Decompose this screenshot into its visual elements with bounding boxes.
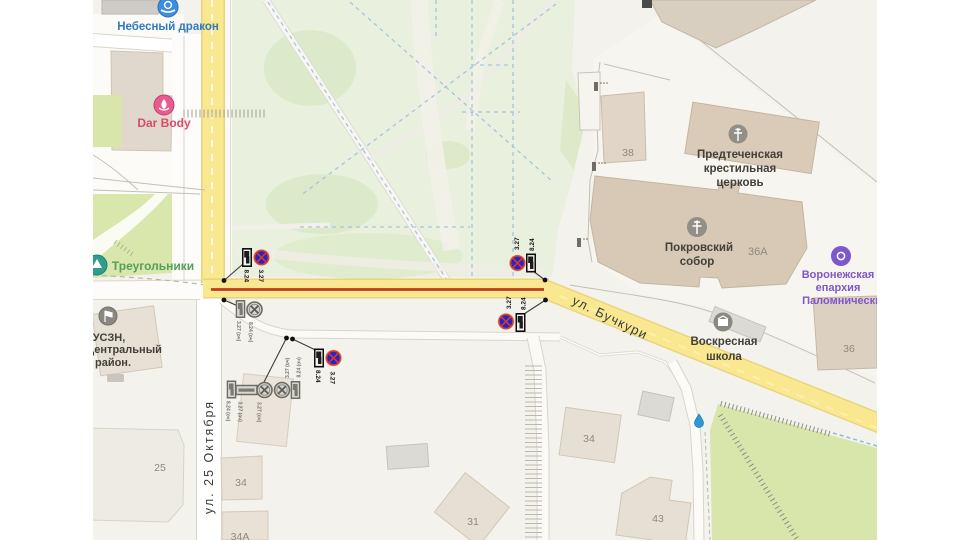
- svg-text:3.27 (оч): 3.27 (оч): [256, 402, 262, 423]
- svg-text:ул. 25 Октября: ул. 25 Октября: [202, 400, 216, 514]
- svg-text:8.24 (оч): 8.24 (оч): [297, 357, 303, 378]
- svg-text:крестильная: крестильная: [704, 163, 777, 175]
- svg-text:УСЗН,: УСЗН,: [93, 332, 126, 344]
- svg-text:Небесный дракон: Небесный дракон: [117, 21, 219, 33]
- svg-text:епархия: епархия: [816, 282, 861, 294]
- svg-text:район.: район.: [95, 357, 131, 369]
- svg-text:8.24 (оч): 8.24 (оч): [225, 401, 231, 422]
- svg-text:8.24 (оч): 8.24 (оч): [247, 322, 253, 343]
- svg-text:Покровский: Покровский: [665, 242, 733, 254]
- svg-text:36: 36: [843, 343, 855, 355]
- svg-text:Центральный: Центральный: [86, 344, 162, 356]
- svg-text:Треугольники: Треугольники: [112, 259, 194, 273]
- svg-text:8.24: 8.24: [529, 238, 536, 251]
- svg-text:3.27 (оч): 3.27 (оч): [285, 357, 291, 378]
- svg-text:25: 25: [154, 462, 166, 474]
- svg-text:Воскресная: Воскресная: [690, 336, 757, 348]
- svg-text:церковь: церковь: [716, 177, 763, 189]
- svg-text:8.24: 8.24: [521, 297, 528, 310]
- svg-text:36А: 36А: [748, 246, 768, 258]
- svg-text:3.27: 3.27: [329, 372, 336, 385]
- svg-text:3.27: 3.27: [257, 270, 264, 283]
- svg-text:3.27 (оч): 3.27 (оч): [237, 402, 243, 423]
- svg-text:34А: 34А: [231, 531, 250, 540]
- svg-text:собор: собор: [680, 256, 715, 268]
- svg-text:Паломнически: Паломнически: [802, 295, 882, 307]
- svg-text:3.27 (оч): 3.27 (оч): [235, 321, 241, 342]
- svg-text:Воронежская: Воронежская: [802, 269, 875, 281]
- svg-text:43: 43: [652, 513, 664, 525]
- svg-text:3.27: 3.27: [506, 296, 513, 309]
- svg-text:3.27: 3.27: [514, 237, 521, 250]
- svg-text:8.24: 8.24: [243, 270, 250, 283]
- svg-text:34: 34: [583, 433, 595, 445]
- svg-text:Предтеченская: Предтеченская: [697, 149, 783, 161]
- svg-text:38: 38: [622, 147, 634, 159]
- svg-text:Dar Body: Dar Body: [137, 116, 191, 130]
- svg-text:31: 31: [467, 516, 479, 528]
- svg-text:8.24: 8.24: [314, 370, 321, 383]
- svg-text:34: 34: [235, 477, 247, 489]
- svg-text:школа: школа: [706, 351, 742, 363]
